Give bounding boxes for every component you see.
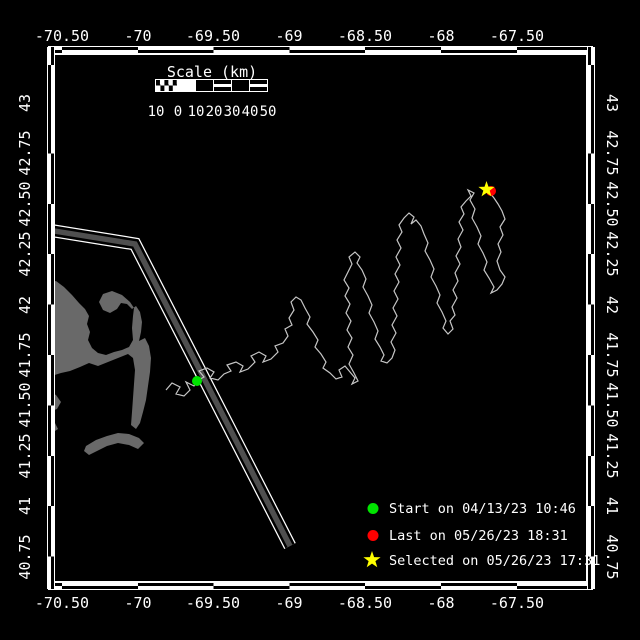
lat-tick-left-2: 42.50 xyxy=(16,181,34,226)
frame-band-left xyxy=(47,47,55,589)
legend-start-label: Start on 04/13/23 10:46 xyxy=(389,501,576,517)
scalebar xyxy=(155,79,268,92)
legend-start-dot xyxy=(368,503,379,514)
scalebar-num-2: 10 xyxy=(188,104,205,120)
lon-tick-bot-6: -67.50 xyxy=(490,594,544,612)
lat-tick-left-0: 43 xyxy=(16,94,34,112)
lat-tick-right-1: 42.75 xyxy=(603,130,621,175)
scalebar-segment xyxy=(231,80,249,91)
lon-tick-top-0: -70.50 xyxy=(35,27,89,45)
land-cape-cod xyxy=(48,281,151,429)
lat-tick-left-7: 41.25 xyxy=(16,433,34,478)
lon-tick-top-5: -68 xyxy=(427,27,454,45)
lon-tick-top-4: -68.50 xyxy=(338,27,392,45)
scalebar-segment xyxy=(249,80,267,91)
scalebar-segment xyxy=(177,80,195,91)
lat-tick-left-3: 42.25 xyxy=(16,231,34,276)
lon-tick-top-6: -67.50 xyxy=(490,27,544,45)
lat-tick-right-3: 42.25 xyxy=(603,231,621,276)
start-marker[interactable] xyxy=(192,376,202,386)
vehicle-track[interactable] xyxy=(166,189,505,396)
lat-tick-right-4: 42 xyxy=(603,296,621,314)
lat-tick-right-2: 42.50 xyxy=(603,181,621,226)
scalebar-checker-segment xyxy=(156,80,177,91)
lat-tick-right-8: 41 xyxy=(603,497,621,515)
lat-tick-right-9: 40.75 xyxy=(603,534,621,579)
lat-tick-left-6: 41.50 xyxy=(16,382,34,427)
lat-tick-left-5: 41.75 xyxy=(16,332,34,377)
lon-tick-bot-0: -70.50 xyxy=(35,594,89,612)
lat-tick-right-0: 43 xyxy=(603,94,621,112)
scalebar-num-1: 0 xyxy=(174,104,182,120)
land-nantucket xyxy=(84,433,144,455)
shipping-lane xyxy=(48,230,290,546)
lat-tick-left-9: 40.75 xyxy=(16,534,34,579)
lon-tick-bot-1: -70 xyxy=(124,594,151,612)
frame-band-bottom xyxy=(48,582,593,590)
legend-selected-label: Selected on 05/26/23 17:31 xyxy=(389,553,600,569)
scalebar-segment xyxy=(195,80,213,91)
scalebar-num-5: 40 xyxy=(242,104,259,120)
frame-band-right xyxy=(587,47,595,589)
scalebar-num-3: 20 xyxy=(206,104,223,120)
lat-tick-right-5: 41.75 xyxy=(603,332,621,377)
lon-tick-top-1: -70 xyxy=(124,27,151,45)
scalebar-num-0: 10 xyxy=(148,104,165,120)
lon-tick-bot-2: -69.50 xyxy=(186,594,240,612)
legend-selected-star-icon xyxy=(363,551,380,567)
lat-tick-right-6: 41.50 xyxy=(603,382,621,427)
track-map-viewer: -70.50 -70 -69.50 -69 -68.50 -68 -67.50 … xyxy=(0,0,640,640)
legend-last-label: Last on 05/26/23 18:31 xyxy=(389,528,568,544)
lon-tick-top-2: -69.50 xyxy=(186,27,240,45)
frame-band-top xyxy=(48,46,593,54)
lat-tick-right-7: 41.25 xyxy=(603,433,621,478)
lon-tick-top-3: -69 xyxy=(275,27,302,45)
map-canvas[interactable] xyxy=(0,0,640,640)
lon-tick-bot-3: -69 xyxy=(275,594,302,612)
lon-tick-bot-4: -68.50 xyxy=(338,594,392,612)
lat-tick-left-8: 41 xyxy=(16,497,34,515)
lat-tick-left-1: 42.75 xyxy=(16,130,34,175)
legend-last-dot xyxy=(368,530,379,541)
scalebar-num-6: 50 xyxy=(260,104,277,120)
scalebar-segment xyxy=(213,80,231,91)
lon-tick-bot-5: -68 xyxy=(427,594,454,612)
scalebar-num-4: 30 xyxy=(224,104,241,120)
lat-tick-left-4: 42 xyxy=(16,296,34,314)
